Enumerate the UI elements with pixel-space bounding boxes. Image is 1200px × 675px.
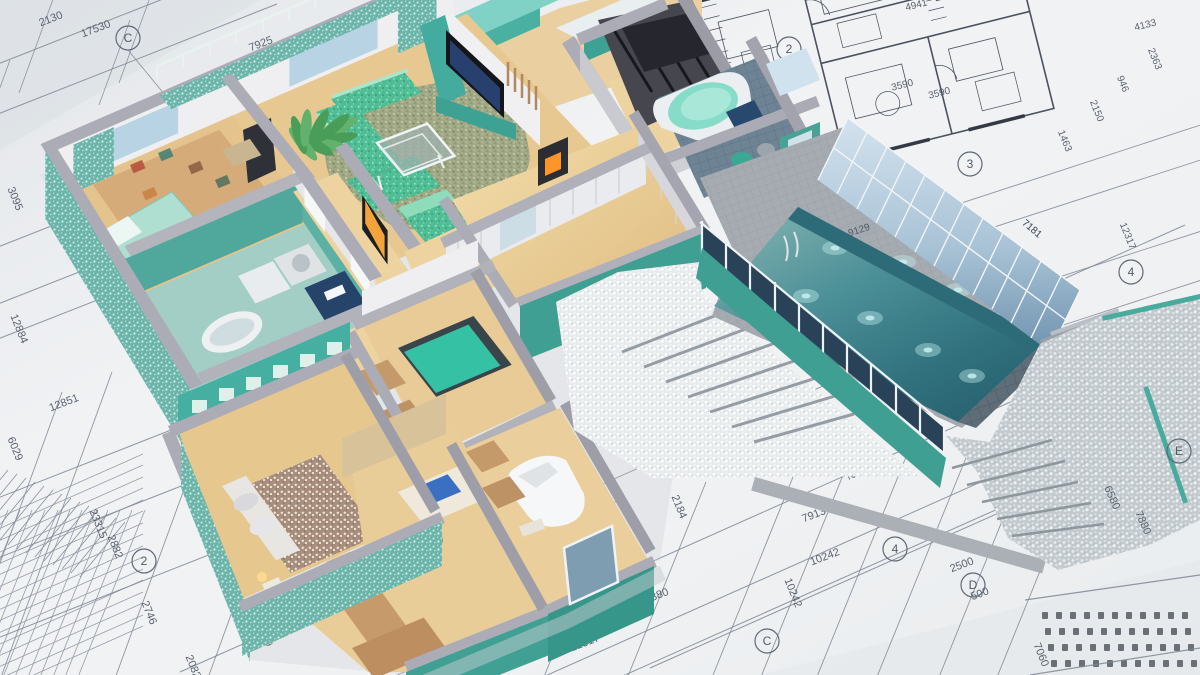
svg-text:D: D	[969, 578, 978, 592]
svg-text:C: C	[124, 31, 133, 45]
svg-text:2: 2	[141, 554, 148, 568]
svg-text:C: C	[763, 634, 772, 648]
svg-text:4: 4	[892, 542, 899, 556]
svg-text:4: 4	[1128, 265, 1135, 279]
svg-text:E: E	[1175, 444, 1183, 458]
svg-text:3: 3	[967, 157, 974, 171]
